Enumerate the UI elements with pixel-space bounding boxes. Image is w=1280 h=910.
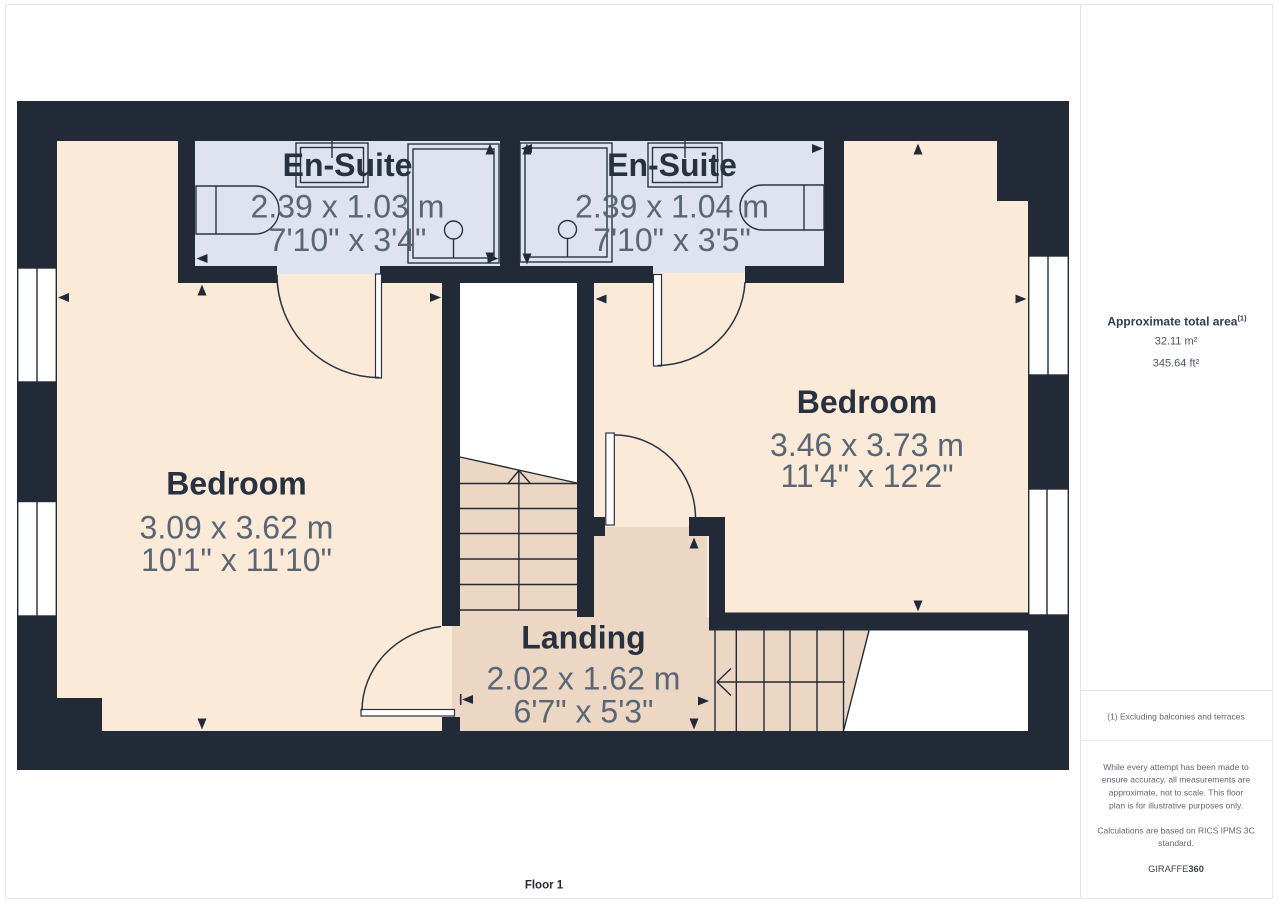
svg-text:While every attempt has been m: While every attempt has been made to: [1103, 762, 1249, 772]
svg-text:Bedroom: Bedroom: [166, 466, 306, 502]
svg-text:Landing: Landing: [521, 620, 645, 656]
svg-text:Floor 1: Floor 1: [525, 880, 564, 892]
svg-text:En-Suite: En-Suite: [607, 147, 737, 183]
svg-text:345.64 ft²: 345.64 ft²: [1153, 358, 1200, 370]
svg-text:10'1" x 11'10": 10'1" x 11'10": [141, 542, 332, 578]
svg-text:standard.: standard.: [1158, 838, 1193, 848]
svg-text:Bedroom: Bedroom: [797, 384, 937, 420]
svg-text:2.39 x 1.04 m: 2.39 x 1.04 m: [575, 188, 769, 224]
svg-text:approximate, not to scale. Thi: approximate, not to scale. This floor: [1109, 788, 1244, 798]
svg-text:ensure accuracy, all measureme: ensure accuracy, all measurements are: [1102, 775, 1250, 785]
svg-text:Approximate total area(1): Approximate total area(1): [1107, 313, 1247, 328]
svg-text:2.02 x 1.62 m: 2.02 x 1.62 m: [487, 661, 681, 697]
svg-text:7'10" x 3'4": 7'10" x 3'4": [269, 222, 427, 258]
svg-text:2.39 x 1.03 m: 2.39 x 1.03 m: [251, 188, 445, 224]
svg-text:En-Suite: En-Suite: [283, 147, 413, 183]
svg-text:6'7" x 5'3": 6'7" x 5'3": [514, 694, 654, 730]
svg-text:Calculations are based on RICS: Calculations are based on RICS IPMS 3C: [1097, 826, 1254, 836]
svg-text:plan is for illustrative purpo: plan is for illustrative purposes only.: [1109, 800, 1243, 810]
svg-text:(1) Excluding balconies and te: (1) Excluding balconies and terraces: [1107, 712, 1245, 722]
svg-text:GIRAFFE360: GIRAFFE360: [1148, 864, 1204, 874]
svg-text:32.11 m²: 32.11 m²: [1155, 336, 1198, 348]
svg-text:3.09 x 3.62 m: 3.09 x 3.62 m: [140, 509, 334, 545]
svg-text:7'10" x 3'5": 7'10" x 3'5": [593, 222, 751, 258]
svg-text:11'4" x 12'2": 11'4" x 12'2": [780, 458, 953, 494]
